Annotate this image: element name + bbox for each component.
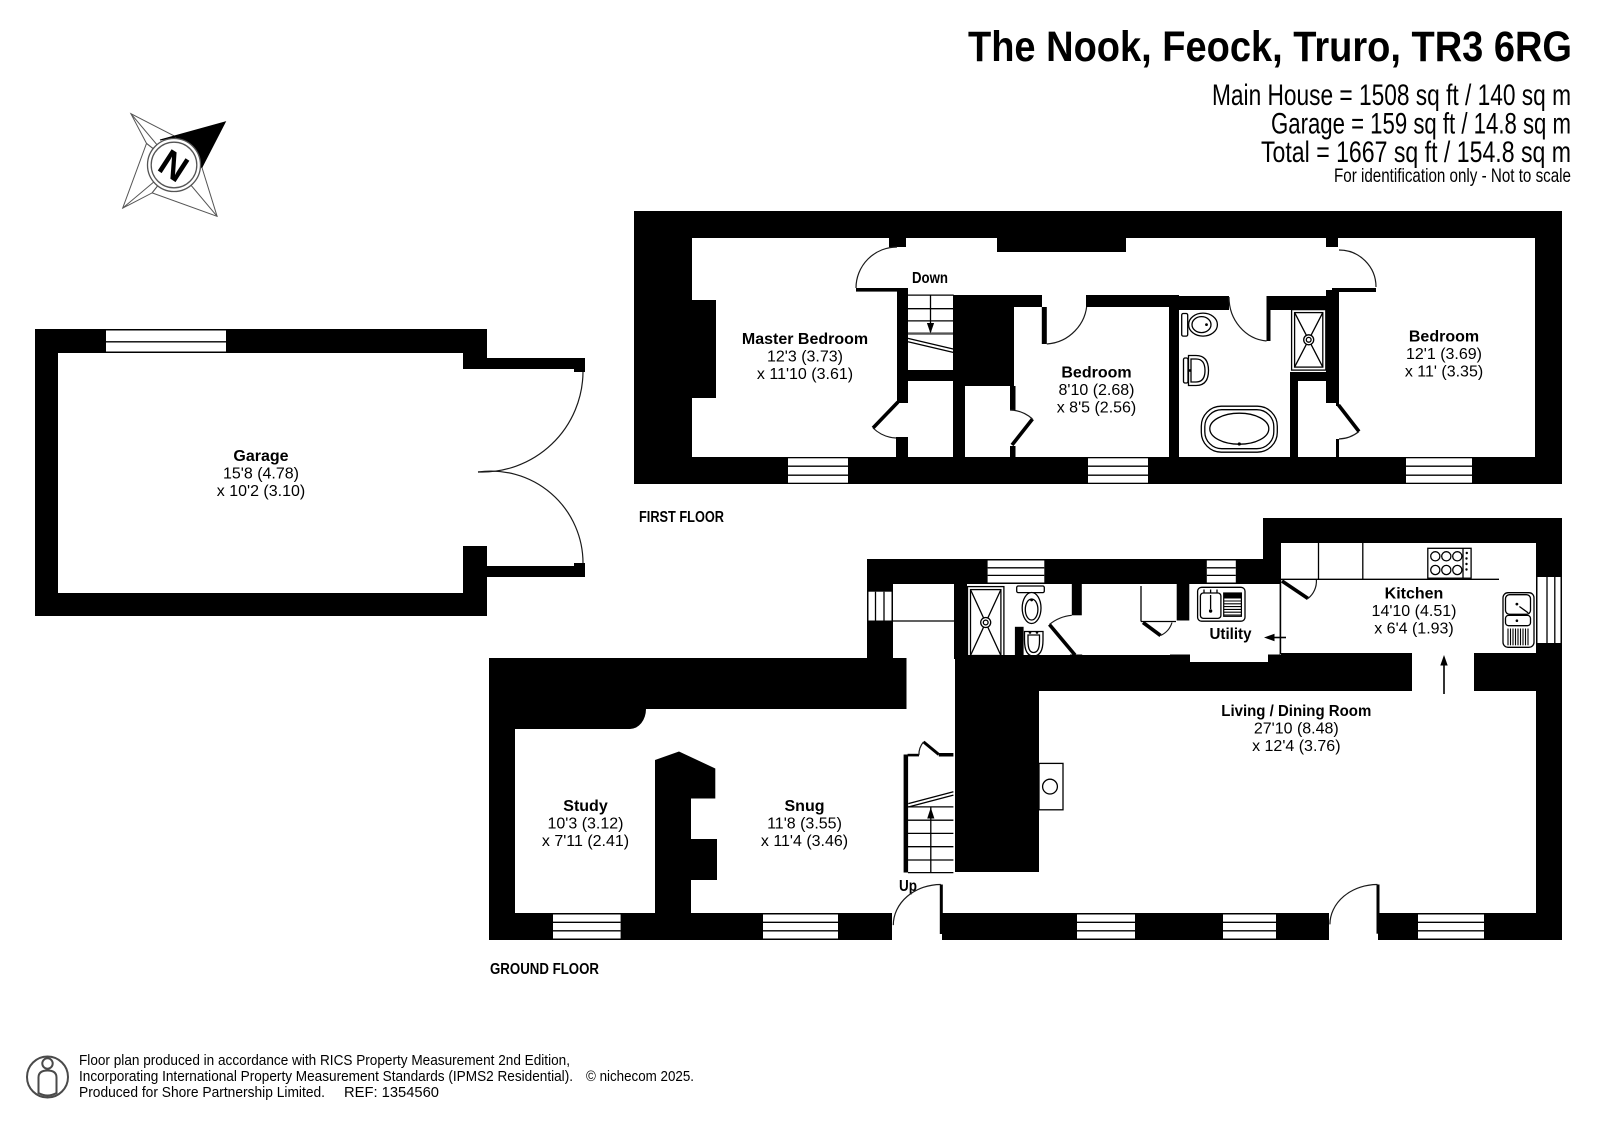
svg-text:Down: Down [912, 270, 948, 287]
svg-text:Incorporating International Pr: Incorporating International Property Mea… [79, 1069, 573, 1085]
svg-text:x 8'5 (2.56): x 8'5 (2.56) [1057, 400, 1137, 417]
svg-text:10'3 (3.12): 10'3 (3.12) [548, 816, 624, 833]
svg-text:x 7'11 (2.41): x 7'11 (2.41) [542, 833, 629, 850]
svg-text:Produced for Shore Partnership: Produced for Shore Partnership Limited. [79, 1085, 325, 1101]
svg-text:Floor plan produced in accorda: Floor plan produced in accordance with R… [79, 1053, 570, 1069]
svg-text:Study: Study [563, 798, 608, 815]
svg-text:x 12'4 (3.76): x 12'4 (3.76) [1252, 738, 1340, 755]
svg-text:Up: Up [899, 878, 917, 895]
svg-text:x 11'10 (3.61): x 11'10 (3.61) [757, 366, 853, 383]
svg-text:15'8 (4.78): 15'8 (4.78) [223, 466, 299, 483]
svg-text:Bedroom: Bedroom [1409, 329, 1479, 346]
svg-text:x 10'2 (3.10): x 10'2 (3.10) [217, 483, 305, 500]
svg-text:x 6'4 (1.93): x 6'4 (1.93) [1374, 621, 1454, 638]
svg-text:Master Bedroom: Master Bedroom [742, 331, 868, 348]
svg-text:Kitchen: Kitchen [1385, 586, 1444, 603]
svg-text:Living / Dining Room: Living / Dining Room [1221, 703, 1371, 720]
svg-text:x 11' (3.35): x 11' (3.35) [1405, 364, 1483, 381]
svg-text:27'10 (8.48): 27'10 (8.48) [1254, 721, 1339, 738]
svg-text:FIRST FLOOR: FIRST FLOOR [639, 509, 724, 526]
svg-text:8'10 (2.68): 8'10 (2.68) [1059, 382, 1135, 399]
svg-text:11'8 (3.55): 11'8 (3.55) [767, 816, 842, 833]
svg-text:For identification only - Not: For identification only - Not to scale [1334, 165, 1571, 187]
svg-text:Utility: Utility [1210, 626, 1252, 643]
svg-text:12'3 (3.73): 12'3 (3.73) [767, 349, 843, 366]
svg-text:12'1 (3.69): 12'1 (3.69) [1406, 346, 1482, 363]
svg-text:x 11'4 (3.46): x 11'4 (3.46) [761, 833, 848, 850]
svg-text:Garage: Garage [233, 448, 288, 465]
svg-text:Snug: Snug [785, 798, 825, 815]
svg-text:© nichecom 2025.: © nichecom 2025. [586, 1069, 694, 1085]
svg-text:REF: 1354560: REF: 1354560 [344, 1085, 439, 1101]
svg-text:GROUND FLOOR: GROUND FLOOR [490, 961, 599, 978]
svg-text:The Nook, Feock, Truro, TR3 6R: The Nook, Feock, Truro, TR3 6RG [968, 23, 1572, 71]
svg-text:Bedroom: Bedroom [1061, 365, 1131, 382]
svg-text:14'10 (4.51): 14'10 (4.51) [1372, 603, 1457, 620]
